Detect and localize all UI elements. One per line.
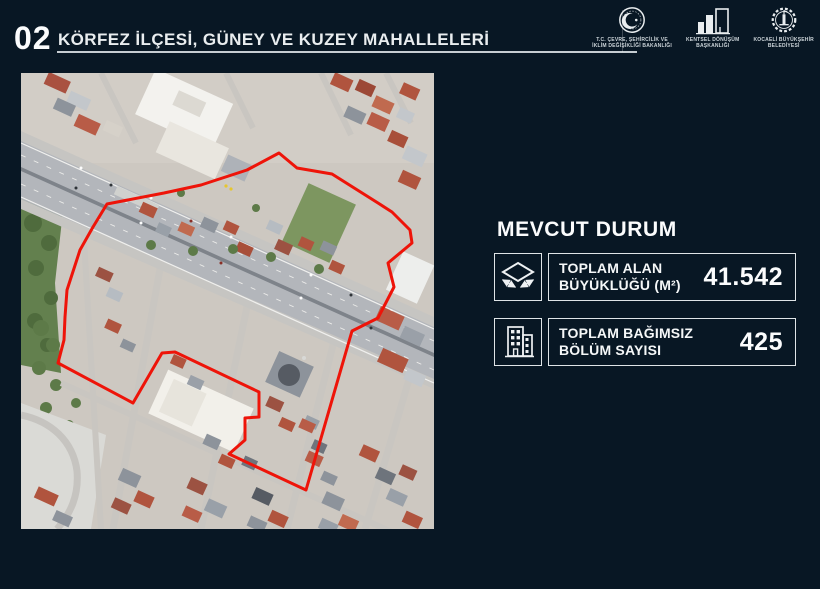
mevcut-durum-panel: MEVCUT DURUM TOPLAM ALAN BÜYÜK [494,218,796,242]
stat-label-line: TOPLAM BAĞIMSIZ [559,325,693,342]
stat-text-box: TOPLAM BAĞIMSIZ BÖLÜM SAYISI 425 [548,318,796,366]
logo-caption-line: İKLİM DEĞİŞİKLİĞİ BAKANLIĞI [592,43,672,49]
city-buildings-icon [694,5,732,35]
panel-heading: MEVCUT DURUM [497,218,796,242]
logo-strip: T.C. ÇEVRE, ŞEHİRCİLİK VE İKLİM DEĞİŞİKL… [592,5,814,50]
ministry-emblem-icon [617,5,647,35]
gear-tower-emblem-icon [769,5,799,35]
stat-card-bagimsiz-bolum: TOPLAM BAĞIMSIZ BÖLÜM SAYISI 425 [494,318,796,366]
logo-ministry: T.C. ÇEVRE, ŞEHİRCİLİK VE İKLİM DEĞİŞİKL… [592,5,672,50]
area-measure-icon [499,259,537,295]
apartment-building-icon [499,323,537,361]
stat-label-line: BÖLÜM SAYISI [559,342,693,359]
stat-text-box: TOPLAM ALAN BÜYÜKLÜĞÜ (M²) 41.542 [548,253,796,301]
title-underline [57,51,637,53]
stat-label-line: TOPLAM ALAN [559,260,681,277]
satellite-map-image [21,73,434,529]
stat-icon-box [494,318,542,366]
stat-icon-box [494,253,542,301]
mosque-dome [278,364,300,386]
satellite-map-svg [21,73,434,529]
stat-value: 425 [740,328,783,357]
logo-caption-line: BAŞKANLIĞI [686,43,739,49]
logo-kocaeli: KOCAELİ BÜYÜKŞEHİR BELEDİYESİ [753,5,814,50]
logo-kentsel-donusum: KENTSEL DÖNÜŞÜM BAŞKANLIĞI [686,5,739,50]
logo-caption-line: BELEDİYESİ [753,43,814,49]
stat-card-toplam-alan: TOPLAM ALAN BÜYÜKLÜĞÜ (M²) 41.542 [494,253,796,301]
presentation-slide: 02 KÖRFEZ İLÇESİ, GÜNEY VE KUZEY MAHALLE… [0,0,820,589]
stat-value: 41.542 [704,263,783,292]
slide-number: 02 [14,20,52,57]
stat-label-line: BÜYÜKLÜĞÜ (M²) [559,277,681,294]
page-title: KÖRFEZ İLÇESİ, GÜNEY VE KUZEY MAHALLELER… [58,30,489,50]
